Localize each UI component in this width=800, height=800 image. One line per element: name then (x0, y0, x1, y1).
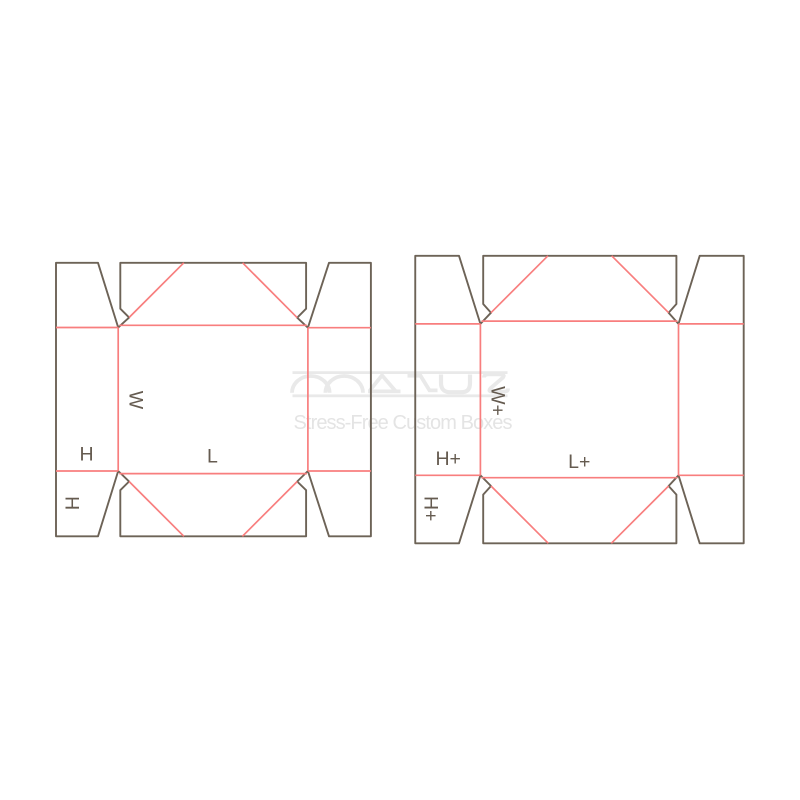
svg-text:H+: H+ (435, 448, 460, 470)
svg-text:H: H (60, 496, 82, 510)
svg-text:W: W (125, 391, 147, 410)
svg-text:L: L (207, 446, 218, 468)
svg-text:W+: W+ (487, 386, 509, 416)
svg-text:H+: H+ (420, 496, 442, 521)
svg-text:L+: L+ (568, 451, 590, 473)
svg-text:H: H (79, 443, 93, 465)
